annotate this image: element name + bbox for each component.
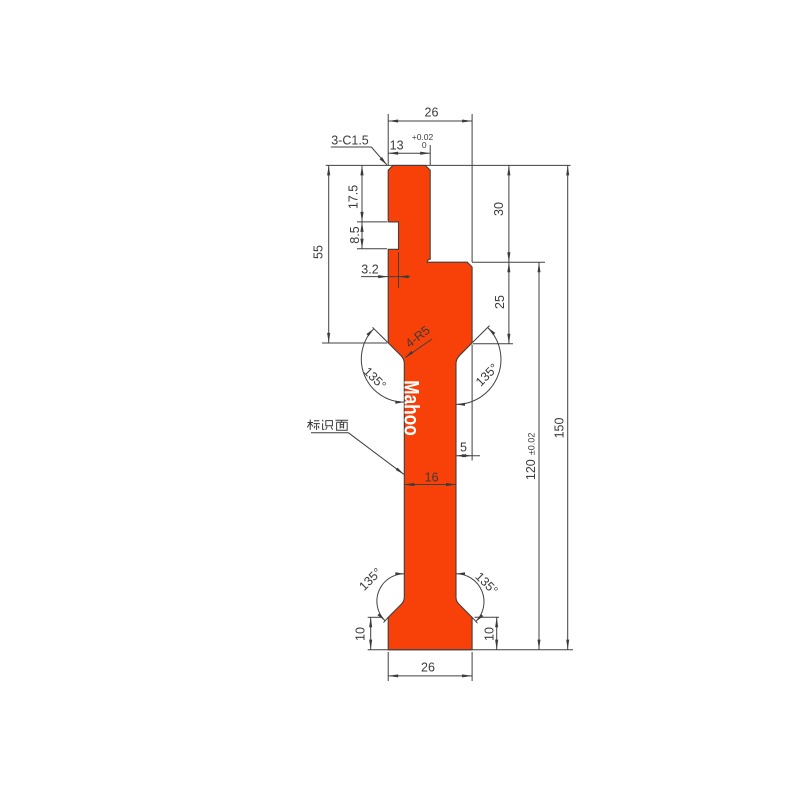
svg-text:135°: 135°: [472, 569, 500, 597]
svg-text:135°: 135°: [356, 565, 384, 593]
svg-text:26: 26: [421, 660, 435, 674]
svg-text:25: 25: [493, 295, 507, 309]
svg-text:16: 16: [425, 470, 439, 484]
svg-text:135°: 135°: [361, 364, 389, 392]
svg-text:10: 10: [483, 627, 497, 641]
svg-text:55: 55: [312, 245, 326, 259]
svg-text:0: 0: [422, 140, 427, 150]
svg-text:30: 30: [492, 202, 506, 216]
svg-text:3-C1.5: 3-C1.5: [331, 133, 369, 147]
svg-text:17.5: 17.5: [347, 185, 361, 209]
svg-text:26: 26: [425, 106, 439, 120]
svg-text:±0.02: ±0.02: [527, 433, 537, 455]
svg-text:10: 10: [354, 627, 368, 641]
svg-text:3.2: 3.2: [361, 262, 378, 276]
svg-text:150: 150: [553, 418, 567, 439]
svg-text:8.5: 8.5: [348, 226, 362, 243]
svg-text:Mahoo: Mahoo: [399, 380, 422, 435]
svg-text:135°: 135°: [473, 361, 501, 389]
svg-text:5: 5: [460, 440, 467, 454]
svg-text:13: 13: [390, 139, 404, 153]
svg-text:120: 120: [524, 459, 538, 480]
